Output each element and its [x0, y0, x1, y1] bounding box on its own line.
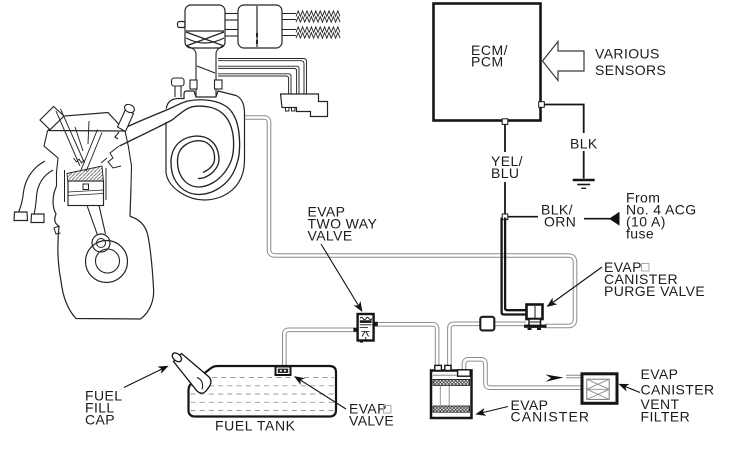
svg-text:BLU: BLU	[491, 165, 519, 181]
svg-text:EVAP: EVAP	[641, 366, 679, 382]
svg-text:VALVE: VALVE	[308, 228, 353, 244]
svg-text:CAP: CAP	[85, 412, 115, 428]
svg-text:FILTER: FILTER	[641, 409, 691, 425]
svg-text:SENSORS: SENSORS	[595, 62, 666, 78]
svg-text:fuse: fuse	[626, 226, 654, 242]
svg-text:VALVE: VALVE	[349, 413, 394, 429]
svg-text:BLK: BLK	[570, 136, 598, 152]
svg-text:PCM: PCM	[471, 54, 504, 70]
svg-text:CANISTER: CANISTER	[511, 409, 591, 425]
svg-text:FUEL TANK: FUEL TANK	[215, 418, 296, 434]
svg-text:VARIOUS: VARIOUS	[595, 46, 660, 62]
svg-text:PURGE VALVE: PURGE VALVE	[604, 283, 705, 299]
svg-text:ORN: ORN	[544, 214, 576, 230]
